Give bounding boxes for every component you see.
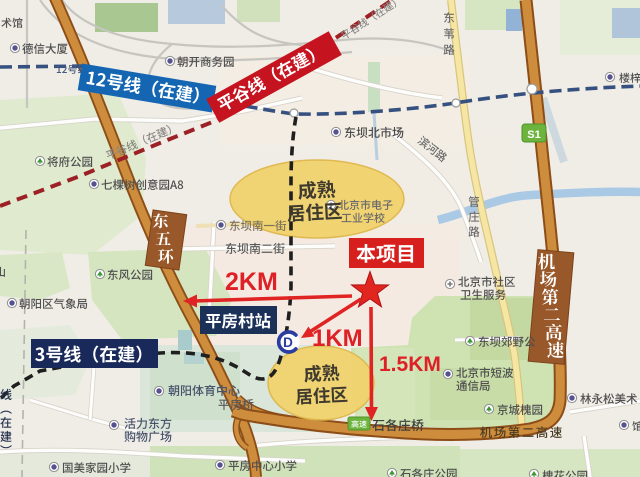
svg-text:D: D — [283, 335, 293, 350]
svg-text:1.5KM: 1.5KM — [379, 353, 441, 376]
svg-text:2KM: 2KM — [225, 268, 278, 296]
svg-text:1KM: 1KM — [312, 325, 363, 352]
svg-text:S1: S1 — [527, 129, 540, 141]
